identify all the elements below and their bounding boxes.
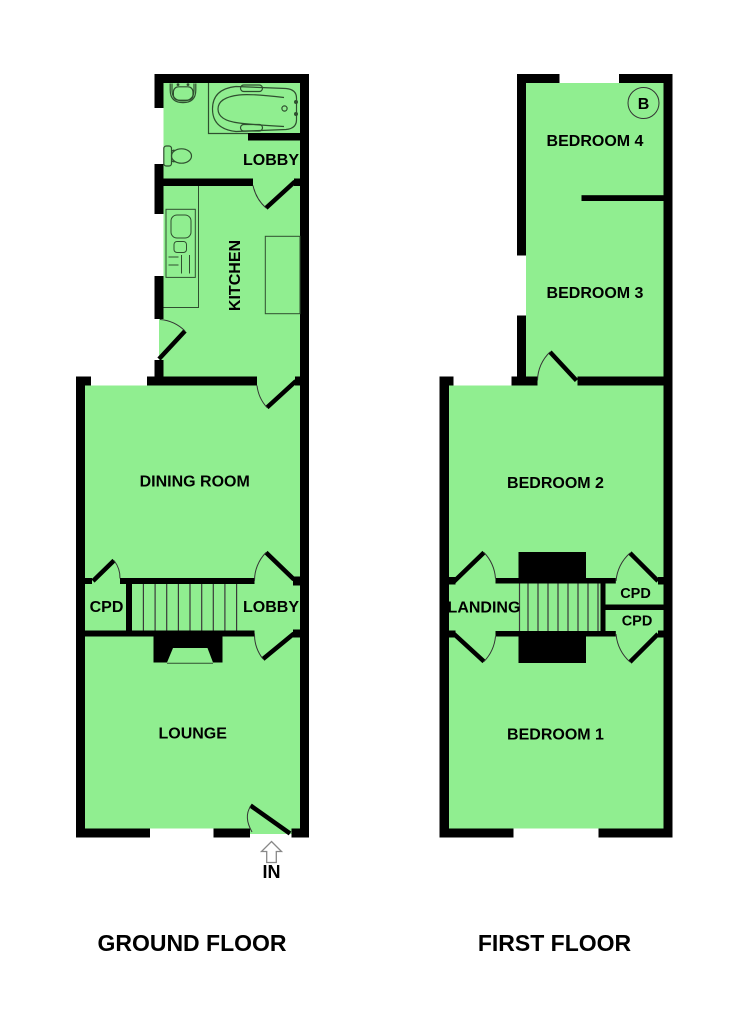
svg-text:GROUND FLOOR: GROUND FLOOR	[97, 930, 286, 956]
svg-text:BEDROOM 4: BEDROOM 4	[547, 133, 644, 150]
svg-text:B: B	[638, 96, 650, 113]
svg-text:BEDROOM 2: BEDROOM 2	[507, 475, 604, 492]
svg-text:BEDROOM 1: BEDROOM 1	[507, 727, 604, 744]
svg-text:BEDROOM 3: BEDROOM 3	[547, 285, 644, 302]
svg-text:LOBBY: LOBBY	[243, 152, 299, 169]
svg-text:IN: IN	[263, 862, 281, 882]
svg-text:CPD: CPD	[90, 599, 124, 616]
svg-text:LOBBY: LOBBY	[243, 599, 299, 616]
svg-text:KITCHEN: KITCHEN	[227, 240, 244, 311]
svg-text:FIRST FLOOR: FIRST FLOOR	[478, 930, 632, 956]
svg-text:DINING ROOM: DINING ROOM	[140, 474, 250, 491]
svg-text:LOUNGE: LOUNGE	[158, 726, 227, 743]
svg-text:LANDING: LANDING	[448, 600, 521, 617]
svg-text:CPD: CPD	[620, 586, 651, 602]
svg-text:CPD: CPD	[622, 614, 653, 630]
